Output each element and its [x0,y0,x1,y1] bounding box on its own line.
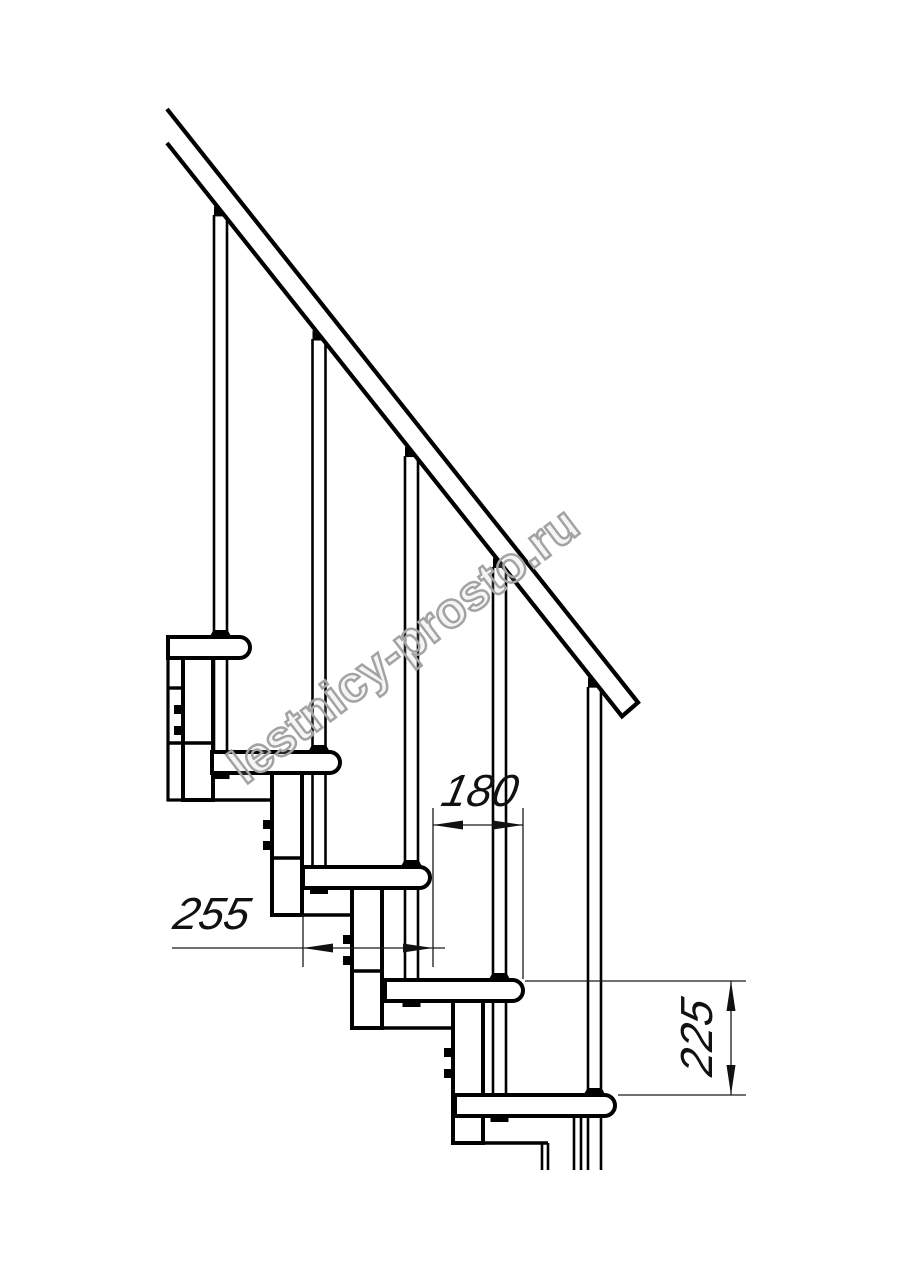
dimension-arrow [727,1065,736,1095]
support-column-4 [453,1001,483,1143]
tread-3 [303,867,430,888]
tread-2 [212,752,340,773]
staircase-drawing: 180255225 [0,0,914,1280]
dimension-arrow [727,981,736,1011]
dimension-arrow [493,821,523,830]
dimension-arrow [433,821,463,830]
connector-tab [212,773,230,779]
dimension-label-255: 255 [168,888,255,938]
column-bolt [444,1048,454,1057]
support-column-1 [183,658,213,800]
tread-5 [455,1095,615,1116]
column-bolt [444,1069,454,1078]
connector-tab [403,1001,421,1007]
connector-tab [491,1116,509,1122]
column-bolt [263,841,273,850]
dimension-label-180: 180 [437,765,523,815]
connector-tab [310,888,328,894]
column-bolt [174,726,184,735]
column-bolt [263,820,273,829]
column-bolt [343,935,353,944]
dimension-label-225: 225 [671,993,721,1080]
column-bolt [174,705,184,714]
dimension-arrow [303,944,333,953]
tread-4 [385,980,523,1001]
tread-1 [168,637,250,658]
support-column-2 [272,773,302,915]
column-bolt [343,956,353,965]
staircase-drawing-canvas: 180255225 lestnicy-prosto.ru [0,0,914,1280]
support-column-3 [352,888,382,1028]
